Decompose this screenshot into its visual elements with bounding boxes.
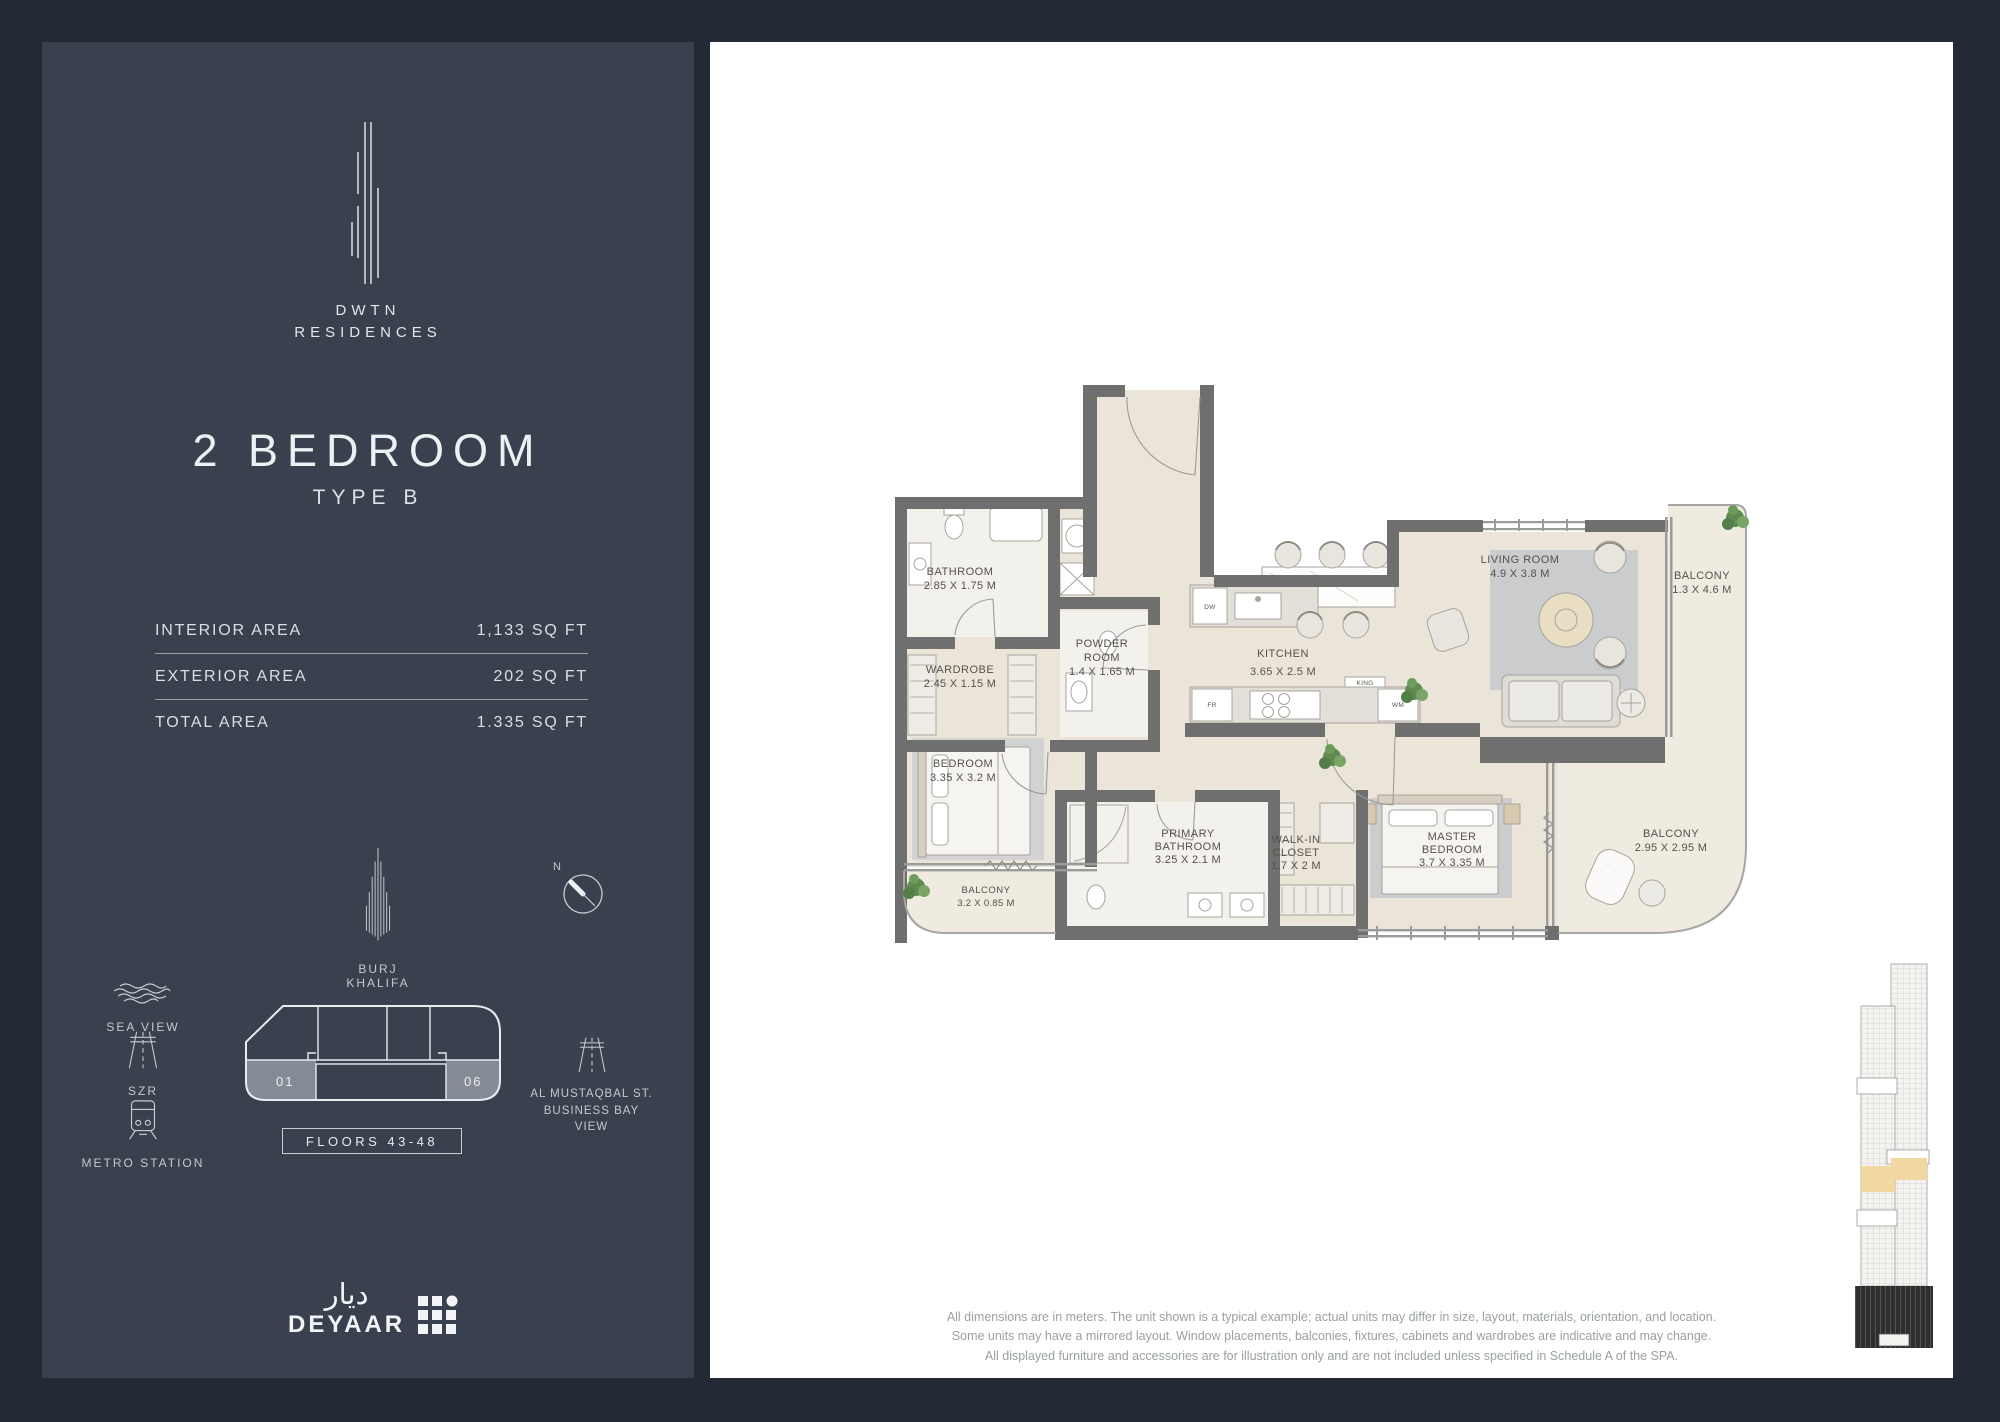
brochure-page: DWTN RESIDENCES 2 BEDROOM TYPE B INTERIO…	[0, 0, 2000, 1422]
disclaimer-line: All displayed furniture and accessories …	[710, 1347, 1953, 1366]
sidebar: DWTN RESIDENCES 2 BEDROOM TYPE B INTERIO…	[42, 42, 694, 1378]
floorplate-diagram: 01 06	[238, 998, 510, 1115]
room-label-primary-bathroom: PRIMARYBATHROOM3.25 X 2.1 M	[1155, 828, 1222, 866]
compass: N	[545, 854, 621, 935]
area-label: INTERIOR AREA	[155, 622, 302, 640]
appliance-label-fr: FR	[1207, 702, 1216, 709]
compass-north-label: N	[553, 861, 562, 873]
unit-01-label: 01	[276, 1074, 294, 1089]
page-subtitle: TYPE B	[42, 486, 694, 510]
disclaimer: All dimensions are in meters. The unit s…	[710, 1308, 1953, 1366]
developer-logo: ديار DEYAAR	[288, 1280, 488, 1337]
view-label: SZR	[68, 1084, 218, 1098]
page-title: 2 BEDROOM	[42, 425, 694, 477]
brand-line1: DWTN	[42, 300, 694, 322]
unit-06-label: 06	[464, 1074, 482, 1089]
sea-waves-icon	[110, 982, 176, 1006]
appliance-label-dw: DW	[1204, 604, 1216, 611]
room-label-walk-in-closet: WALK-INCLOSET1.7 X 2 M	[1271, 834, 1321, 872]
deyaar-grid-icon	[417, 1295, 459, 1337]
table-row: TOTAL AREA 1.335 SQ FT	[155, 700, 588, 745]
area-value: 202 SQ FT	[494, 668, 588, 686]
table-row: EXTERIOR AREA 202 SQ FT	[155, 654, 588, 700]
view-label: METRO STATION	[68, 1156, 218, 1170]
sidebar-item-metro: METRO STATION	[68, 1098, 218, 1170]
landmark-label: BURJ KHALIFA	[328, 962, 428, 990]
floors-badge: FLOORS 43-48	[282, 1128, 462, 1154]
appliance-label-wm: WM	[1392, 702, 1404, 709]
dwtn-logo-icon	[42, 118, 694, 295]
burj-khalifa-icon	[356, 848, 400, 948]
highway-icon	[119, 1030, 167, 1070]
developer-name: DEYAAR	[288, 1313, 405, 1337]
metro-train-icon	[119, 1098, 167, 1142]
sidebar-item-szr: SZR	[68, 1030, 218, 1098]
room-label-master-bedroom: MASTERBEDROOM3.7 X 3.35 M	[1419, 831, 1485, 869]
highway-icon	[570, 1036, 614, 1074]
burj-khalifa-marker: BURJ KHALIFA	[328, 848, 428, 990]
floor-plan: BATHROOM2.85 X 1.75 M WARDROBE2.45 X 1.1…	[890, 385, 1760, 945]
appliance-label-king: KING	[1356, 680, 1373, 687]
floorplan-panel: BATHROOM2.85 X 1.75 M WARDROBE2.45 X 1.1…	[710, 42, 1953, 1378]
highlighted-floors-band	[1861, 1166, 1895, 1192]
brand-line2: RESIDENCES	[42, 322, 694, 344]
area-label: EXTERIOR AREA	[155, 668, 307, 686]
table-row: INTERIOR AREA 1,133 SQ FT	[155, 608, 588, 654]
disclaimer-line: Some units may have a mirrored layout. W…	[710, 1327, 1953, 1346]
area-table: INTERIOR AREA 1,133 SQ FT EXTERIOR AREA …	[155, 608, 588, 745]
building-elevation	[1855, 958, 1935, 1359]
brand-name: DWTN RESIDENCES	[42, 300, 694, 344]
developer-arabic-name: ديار	[288, 1280, 405, 1309]
disclaimer-line: All dimensions are in meters. The unit s…	[710, 1308, 1953, 1327]
area-value: 1.335 SQ FT	[477, 714, 588, 732]
sidebar-item-sea-view: SEA VIEW	[68, 982, 218, 1034]
area-label: TOTAL AREA	[155, 714, 270, 732]
street-view-marker: AL MUSTAQBAL ST. BUSINESS BAY VIEW	[524, 1036, 659, 1136]
street-label: AL MUSTAQBAL ST. BUSINESS BAY VIEW	[524, 1086, 659, 1136]
area-value: 1,133 SQ FT	[477, 622, 588, 640]
